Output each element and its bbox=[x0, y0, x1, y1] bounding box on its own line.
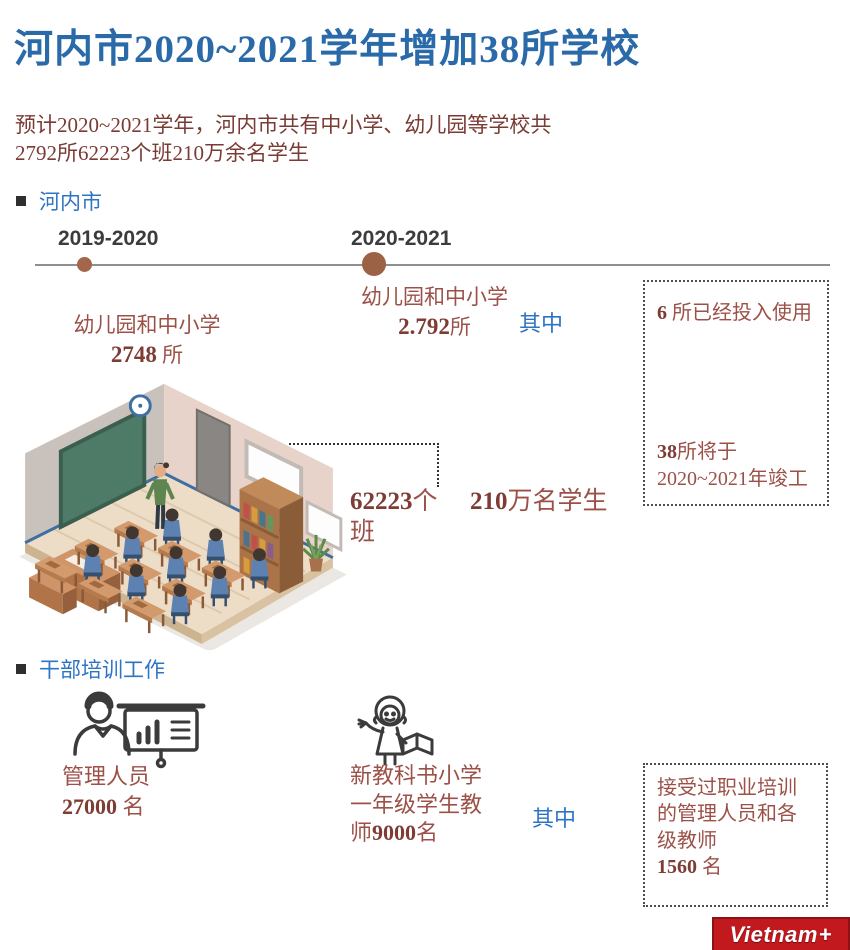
year-label-2020: 2020-2021 bbox=[351, 227, 451, 251]
section-header-training: 干部培训工作 bbox=[16, 654, 165, 684]
timeline-dot-2019 bbox=[77, 257, 92, 272]
teacher-with-book-icon bbox=[345, 690, 440, 770]
section-header-hanoi: 河内市 bbox=[16, 186, 102, 216]
logo-text: Vietnam bbox=[730, 922, 818, 948]
callout-planned: 38所将于 2020~2021年竣工 bbox=[657, 439, 808, 492]
page-title: 河内市2020~2021学年增加38所学校 bbox=[14, 18, 640, 74]
vietnamplus-logo: Vietnam+ bbox=[712, 917, 850, 950]
callout-in-use: 6 所已经投入使用 bbox=[657, 300, 815, 326]
square-bullet-icon bbox=[16, 664, 26, 674]
stat-classes: 62223个 班 bbox=[350, 487, 438, 548]
stat-students: 210万名学生 bbox=[470, 487, 608, 518]
subtitle-line2: 2792所62223个班210万余名学生 bbox=[15, 141, 309, 165]
classroom-illustration bbox=[12, 370, 347, 650]
stat-2020-schools: 幼儿园和中小学 2.792所 bbox=[352, 283, 517, 342]
section-label-training: 干部培训工作 bbox=[39, 654, 165, 684]
year-label-2019: 2019-2020 bbox=[58, 227, 158, 251]
connector-line-vertical bbox=[437, 443, 439, 487]
timeline-line bbox=[35, 264, 830, 266]
manager-presentation-icon bbox=[55, 688, 235, 770]
callout-box-training: 接受过职业培训 的管理人员和各 级教师 1560 名 bbox=[643, 763, 828, 907]
among-label-training: 其中 bbox=[532, 801, 576, 833]
logo-plus-icon: + bbox=[819, 922, 832, 948]
timeline-dot-2020 bbox=[362, 252, 386, 276]
subtitle-line1: 预计2020~2021学年，河内市共有中小学、幼儿园等学校共 bbox=[15, 113, 551, 137]
among-label-hanoi: 其中 bbox=[519, 306, 563, 338]
square-bullet-icon bbox=[16, 196, 26, 206]
connector-line-horizontal bbox=[289, 443, 439, 445]
infographic-canvas: 河内市2020~2021学年增加38所学校 预计2020~2021学年，河内市共… bbox=[0, 0, 850, 950]
section-label-hanoi: 河内市 bbox=[39, 186, 102, 216]
stat-teachers: 新教科书小学 一年级学生教 师9000名 bbox=[350, 762, 510, 848]
callout-box-construction: 6 所已经投入使用 38所将于 2020~2021年竣工 bbox=[643, 280, 829, 506]
stat-2019-schools: 幼儿园和中小学 2748 所 bbox=[52, 311, 242, 370]
stat-managers: 管理人员 27000 名 bbox=[62, 762, 150, 823]
subtitle: 预计2020~2021学年，河内市共有中小学、幼儿园等学校共 2792所6222… bbox=[15, 112, 551, 167]
